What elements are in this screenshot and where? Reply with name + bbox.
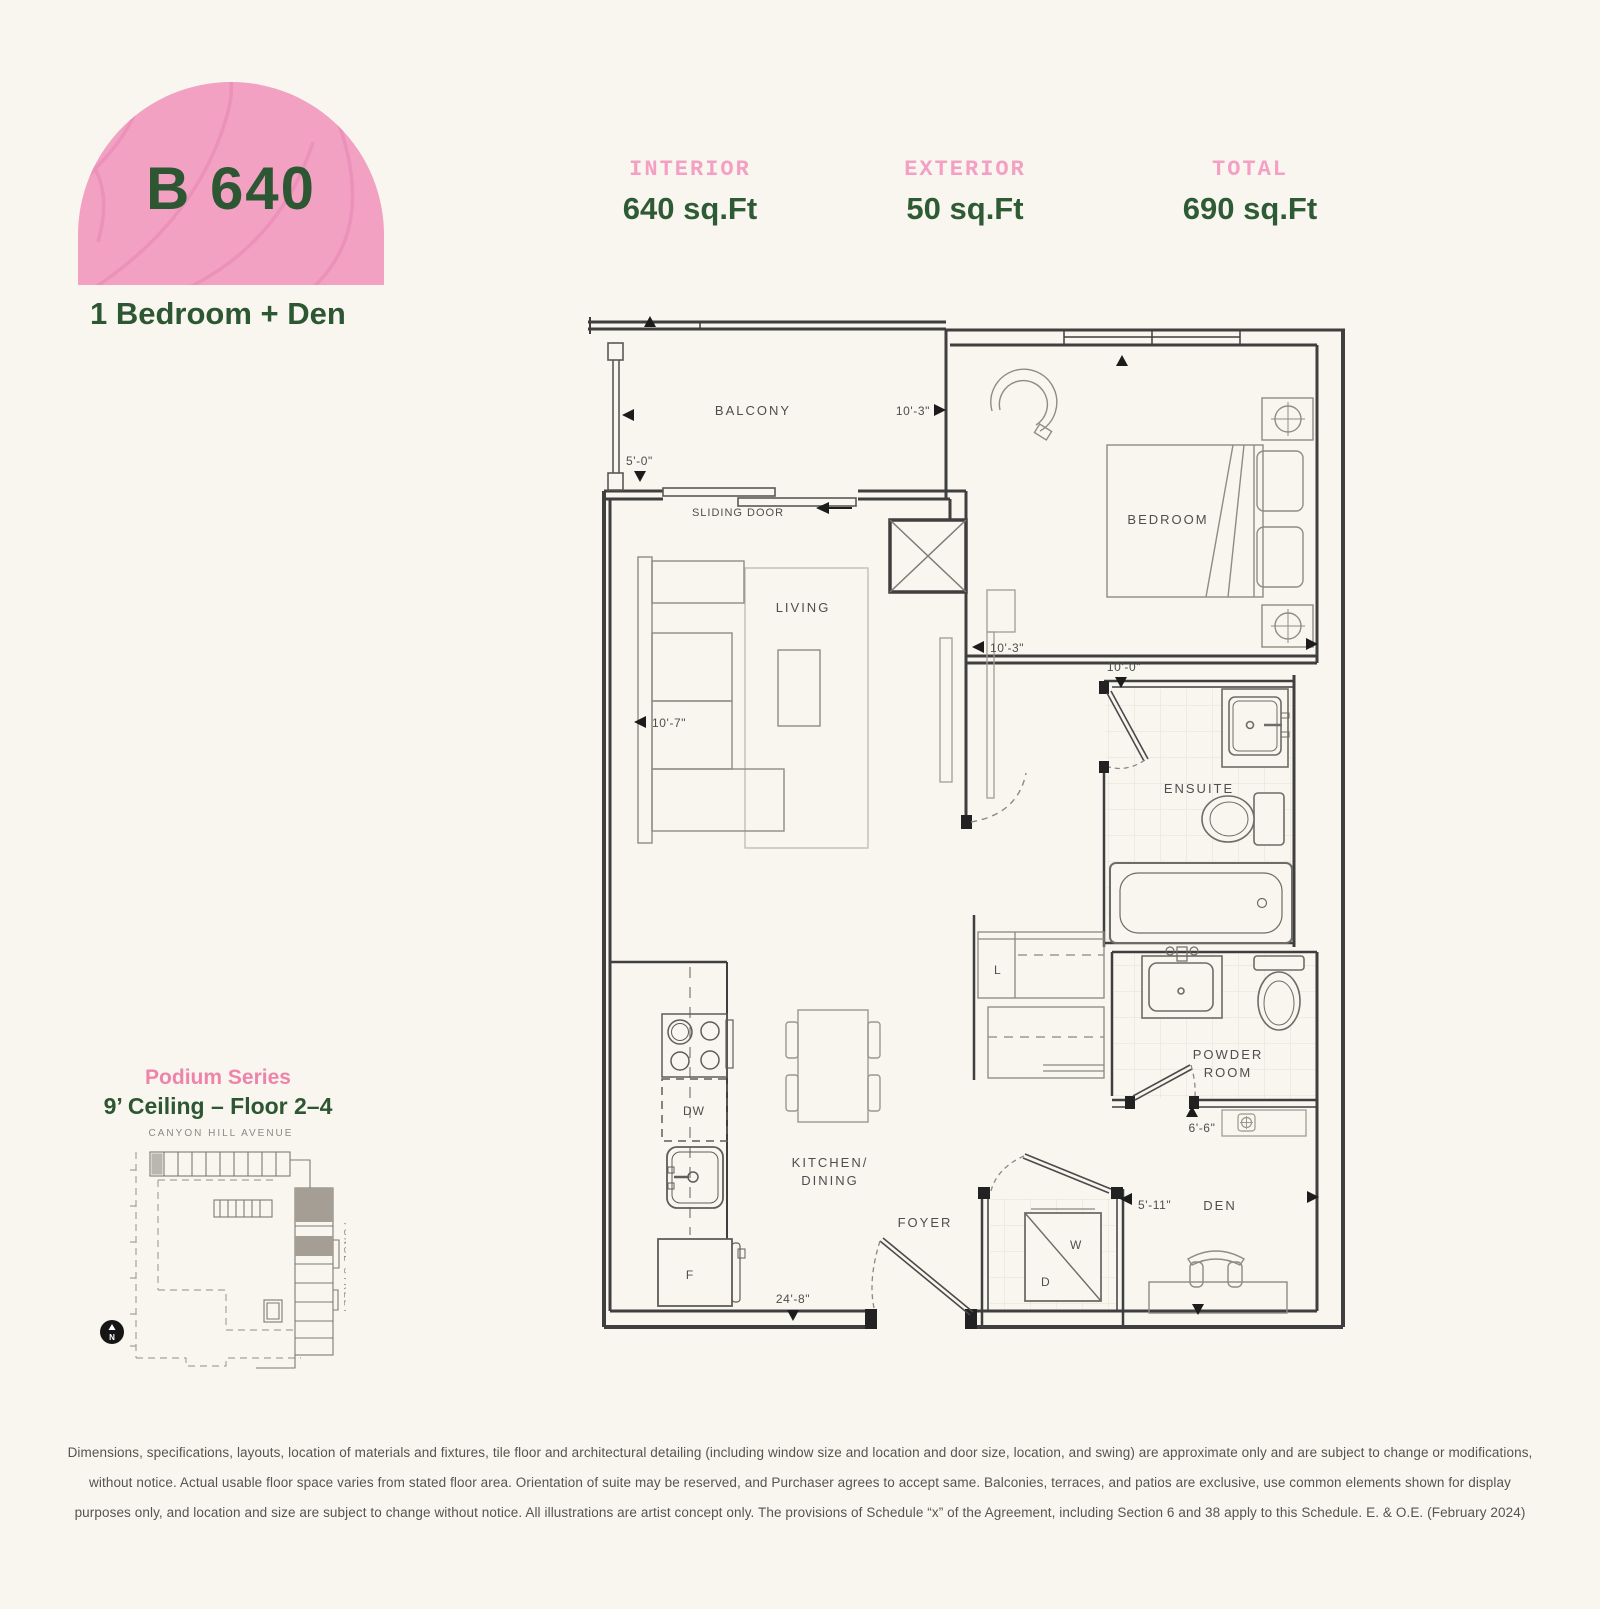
balcony-railing: [608, 343, 623, 490]
unit-badge: B 640: [78, 82, 384, 285]
keyplan-highlight-units: [295, 1188, 333, 1256]
north-arrow-icon: N: [100, 1320, 124, 1344]
bedroom-furniture: [991, 369, 1313, 647]
dim-living-width: 10'-7": [652, 716, 686, 730]
disclaimer: Dimensions, specifications, layouts, loc…: [0, 1438, 1600, 1528]
dim-den-width: 5'-11": [1138, 1198, 1171, 1212]
keyplan-series: Podium Series: [93, 1066, 343, 1090]
stat-interior-label: INTERIOR: [623, 157, 757, 182]
keyplan-street-right: YONGE STREET: [342, 1221, 346, 1316]
label-sliding-door: SLIDING DOOR: [692, 507, 784, 519]
north-arrow-label: N: [109, 1333, 115, 1342]
keyplan-street-top: CANYON HILL AVENUE: [96, 1128, 346, 1139]
stat-interior: INTERIOR 640 sq.Ft: [623, 157, 757, 227]
label-kitchen-2: DINING: [801, 1173, 859, 1188]
label-powder-2: ROOM: [1204, 1065, 1252, 1080]
keyplan-ceiling: 9’ Ceiling – Floor 2–4: [73, 1093, 363, 1120]
label-den: DEN: [1203, 1198, 1236, 1213]
label-dryer: D: [1041, 1275, 1051, 1289]
label-fridge: F: [686, 1268, 694, 1282]
stat-total-label: TOTAL: [1183, 157, 1317, 182]
label-dishwasher: DW: [683, 1104, 705, 1118]
shaft: [890, 520, 966, 592]
stat-exterior: EXTERIOR 50 sq.Ft: [904, 157, 1026, 227]
unit-type: 1 Bedroom + Den: [90, 296, 346, 332]
floor-plan: BALCONY 10'-3" 5'-0" SLIDING DOOR LIVING…: [588, 315, 1348, 1335]
stat-exterior-value: 50 sq.Ft: [904, 191, 1026, 227]
unit-code: B 640: [78, 154, 384, 223]
keyplan-map: YONGE STREET N: [96, 1140, 346, 1375]
floorplan-sheet: B 640 1 Bedroom + Den INTERIOR 640 sq.Ft…: [0, 0, 1600, 1609]
stat-total-value: 690 sq.Ft: [1183, 191, 1317, 227]
label-foyer: FOYER: [898, 1215, 953, 1230]
label-living: LIVING: [776, 600, 831, 615]
label-bedroom: BEDROOM: [1127, 512, 1208, 527]
label-linen: L: [994, 963, 1002, 977]
dining-set: [786, 1010, 880, 1122]
dim-balcony-depth: 5'-0": [626, 454, 653, 468]
laundry: [1025, 1209, 1101, 1301]
hall-closets: [978, 932, 1104, 1078]
label-balcony: BALCONY: [715, 403, 791, 418]
label-powder-1: POWDER: [1193, 1047, 1264, 1062]
dim-balcony-width: 10'-3": [896, 404, 930, 418]
stat-interior-value: 640 sq.Ft: [623, 191, 757, 227]
keyplan-building: [150, 1152, 339, 1368]
kitchen-appliances: [658, 967, 745, 1306]
disclaimer-line-2: without notice. Actual usable floor spac…: [0, 1468, 1600, 1498]
stat-total: TOTAL 690 sq.Ft: [1183, 157, 1317, 227]
stat-exterior-label: EXTERIOR: [904, 157, 1026, 182]
disclaimer-line-1: Dimensions, specifications, layouts, loc…: [0, 1438, 1600, 1468]
label-washer: W: [1070, 1238, 1082, 1252]
dim-ensuite-width: 10'-0": [1107, 660, 1141, 674]
den-furniture: [1149, 1251, 1287, 1313]
living-furniture: [638, 557, 868, 848]
disclaimer-line-3: purposes only, and location and size are…: [0, 1498, 1600, 1528]
keyplan-property-line: [130, 1152, 301, 1366]
label-kitchen-1: KITCHEN/: [792, 1155, 869, 1170]
label-ensuite: ENSUITE: [1164, 781, 1234, 796]
media-wall-panels: [940, 590, 1015, 798]
dim-powder-width: 6'-6": [1189, 1121, 1216, 1135]
dim-bedroom-width: 10'-3": [990, 641, 1024, 655]
dim-unit-width: 24'-8": [776, 1292, 810, 1306]
